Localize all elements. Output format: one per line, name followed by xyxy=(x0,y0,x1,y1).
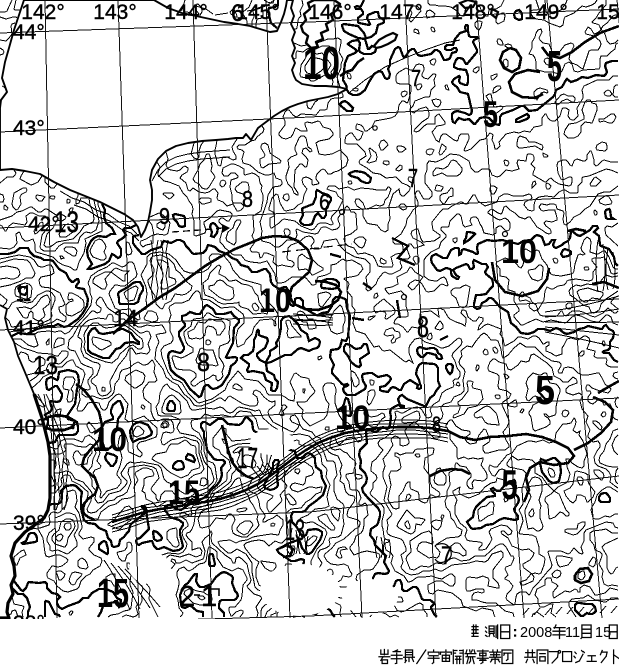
svg-text:15: 15 xyxy=(168,474,200,512)
svg-text:14: 14 xyxy=(113,305,138,331)
svg-text:5: 5 xyxy=(502,461,518,508)
svg-text:6: 6 xyxy=(319,189,330,215)
svg-text:147°: 147° xyxy=(379,1,422,24)
svg-text:7: 7 xyxy=(411,65,421,91)
svg-text:13: 13 xyxy=(285,514,305,547)
svg-text:10: 10 xyxy=(259,282,291,320)
svg-text:39°: 39° xyxy=(13,512,45,535)
svg-text:7: 7 xyxy=(408,163,418,193)
svg-text:13: 13 xyxy=(33,350,58,380)
svg-text:148°: 148° xyxy=(451,1,494,24)
svg-text:10: 10 xyxy=(303,37,340,89)
svg-text:9: 9 xyxy=(159,203,170,229)
svg-text:5: 5 xyxy=(547,42,562,91)
svg-text:2008: 2008 xyxy=(520,625,552,641)
svg-text:11: 11 xyxy=(565,625,580,641)
svg-text:10: 10 xyxy=(92,421,127,459)
svg-text:2: 2 xyxy=(179,581,195,613)
svg-text:6: 6 xyxy=(231,0,244,27)
svg-text:17: 17 xyxy=(237,443,258,475)
svg-text:43°: 43° xyxy=(13,117,45,140)
svg-text:10: 10 xyxy=(335,399,370,437)
svg-text:5: 5 xyxy=(535,367,555,413)
svg-text:143°: 143° xyxy=(93,1,136,24)
svg-text:44°: 44° xyxy=(13,21,45,44)
svg-text:41°: 41° xyxy=(13,317,45,340)
svg-text:146°: 146° xyxy=(308,1,351,24)
svg-text:40°: 40° xyxy=(13,416,45,439)
svg-text:15: 15 xyxy=(595,625,611,641)
svg-text:15: 15 xyxy=(97,570,129,616)
svg-text:144°: 144° xyxy=(164,1,207,24)
svg-text:11: 11 xyxy=(16,280,31,306)
svg-text:8: 8 xyxy=(197,347,210,377)
svg-text:10: 10 xyxy=(501,233,537,271)
svg-text:1: 1 xyxy=(201,581,217,613)
svg-text:5: 5 xyxy=(483,94,498,135)
svg-text:149°: 149° xyxy=(524,1,567,24)
svg-text:8: 8 xyxy=(417,311,429,344)
svg-text:8: 8 xyxy=(432,412,441,437)
svg-text:8: 8 xyxy=(242,186,253,212)
svg-text:13: 13 xyxy=(54,206,79,239)
svg-text:150°: 150° xyxy=(596,1,619,24)
svg-text:7: 7 xyxy=(441,542,452,570)
